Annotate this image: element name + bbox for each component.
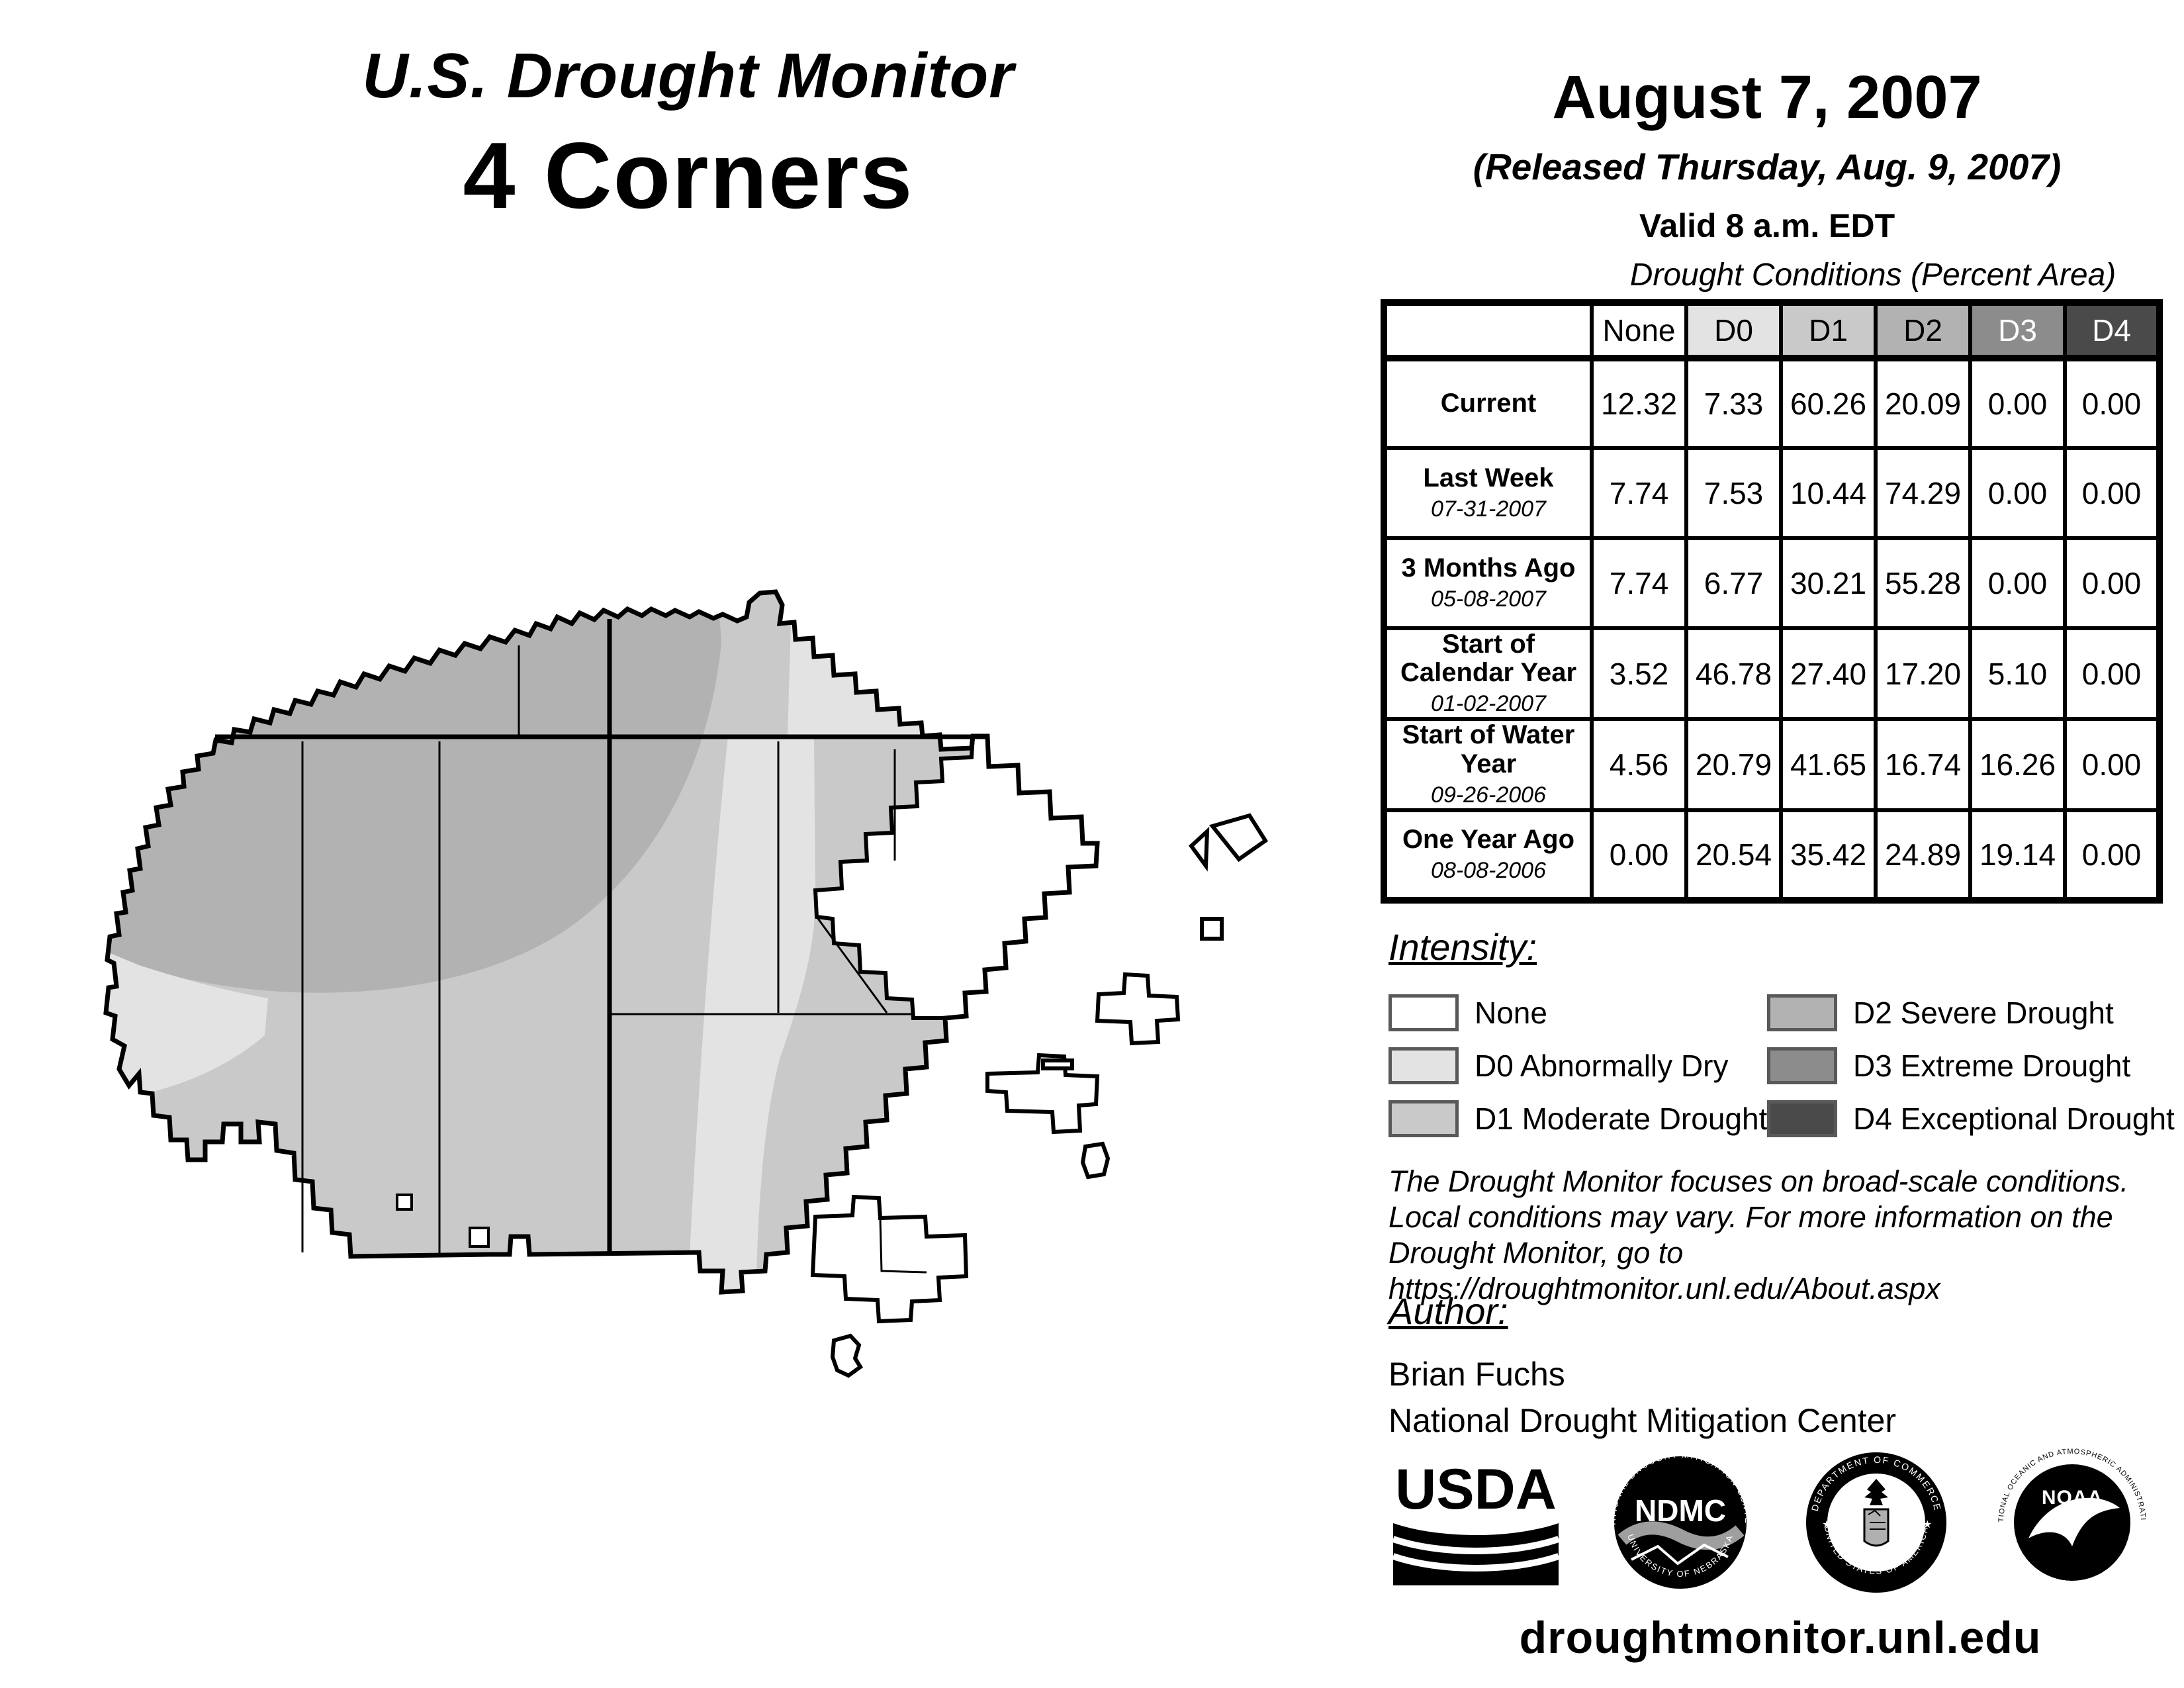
commerce-shield	[1864, 1509, 1888, 1546]
logos-row: USDA NATIONAL DROUGHT MITIGATION CENTER …	[1393, 1443, 2148, 1602]
island-shape	[833, 1336, 860, 1376]
legend-item-d4: D4 Exceptional Drought	[1767, 1100, 2164, 1138]
legend-heading: Intensity:	[1388, 925, 2169, 968]
value-cell: 35.42	[1781, 810, 1876, 900]
row-label-cell: Start of Water Year 09-26-2006	[1384, 719, 1592, 810]
value-cell: 0.00	[2065, 810, 2160, 900]
usda-logo: USDA	[1393, 1460, 1559, 1585]
value-cell: 60.26	[1781, 358, 1876, 448]
legend-swatch-d4	[1767, 1100, 1837, 1137]
ndmc-logo-text: NDMC	[1635, 1493, 1726, 1528]
row-date: 07-31-2007	[1387, 496, 1590, 522]
table-row: Current 12.32 7.33 60.26 20.09 0.00 0.00	[1384, 358, 2160, 448]
legend-label: D3 Extreme Drought	[1853, 1048, 2130, 1084]
table-header-row: None D0 D1 D2 D3 D4	[1384, 303, 2160, 358]
island-shape	[1202, 919, 1222, 939]
row-label-cell: Start of Calendar Year 01-02-2007	[1384, 628, 1592, 719]
legend-label: D4 Exceptional Drought	[1853, 1101, 2175, 1137]
disclaimer-line: The Drought Monitor focuses on broad-sca…	[1388, 1164, 2176, 1199]
row-label: Last Week	[1387, 464, 1590, 492]
value-cell: 7.53	[1686, 448, 1781, 538]
page-title: U.S. Drought Monitor	[199, 40, 1178, 113]
value-cell: 0.00	[1970, 538, 2065, 628]
noaa-logo-text: NOAA	[2042, 1487, 2103, 1509]
legend-item-d3: D3 Extreme Drought	[1767, 1047, 2164, 1085]
legend-swatch-d3	[1767, 1047, 1837, 1084]
value-cell: 16.74	[1876, 719, 1970, 810]
legend-column-left: None D0 Abnormally Dry D1 Moderate Droug…	[1388, 994, 1767, 1152]
legend-item-d0: D0 Abnormally Dry	[1388, 1047, 1767, 1085]
value-cell: 74.29	[1876, 448, 1970, 538]
legend-swatch-d0	[1388, 1047, 1459, 1084]
title-block: U.S. Drought Monitor 4 Corners	[199, 40, 1178, 230]
value-cell: 19.14	[1970, 810, 2065, 900]
value-cell: 0.00	[2065, 628, 2160, 719]
value-cell: 4.56	[1592, 719, 1686, 810]
island-shape	[813, 1197, 966, 1321]
row-label-cell: One Year Ago 08-08-2006	[1384, 810, 1592, 900]
value-cell: 30.21	[1781, 538, 1876, 628]
disclaimer: The Drought Monitor focuses on broad-sca…	[1388, 1164, 2176, 1307]
legend-label: D2 Severe Drought	[1853, 995, 2114, 1031]
drought-monitor-report: U.S. Drought Monitor 4 Corners August 7,…	[0, 0, 2184, 1688]
island-shape	[1083, 1144, 1108, 1177]
ndmc-logo: NATIONAL DROUGHT MITIGATION CENTER UNIVE…	[1605, 1447, 1756, 1598]
author-name: Brian Fuchs	[1388, 1351, 1896, 1397]
row-label: Start of Calendar Year	[1387, 630, 1590, 687]
table-row: One Year Ago 08-08-2006 0.00 20.54 35.42…	[1384, 810, 2160, 900]
col-header-d2: D2	[1876, 303, 1970, 358]
legend-column-right: D2 Severe Drought D3 Extreme Drought D4 …	[1767, 994, 2164, 1152]
island-shape	[1043, 1060, 1072, 1068]
row-label: 3 Months Ago	[1387, 554, 1590, 583]
value-cell: 20.54	[1686, 810, 1781, 900]
value-cell: 0.00	[2065, 538, 2160, 628]
drought-conditions-table: None D0 D1 D2 D3 D4 Current 12.32 7.33 6…	[1381, 299, 2163, 904]
value-cell: 20.09	[1876, 358, 1970, 448]
map-container	[66, 583, 1324, 1410]
row-label: Current	[1387, 389, 1590, 418]
legend-swatch-none	[1388, 994, 1459, 1031]
island-shape	[1212, 816, 1265, 859]
table-row: Last Week 07-31-2007 7.74 7.53 10.44 74.…	[1384, 448, 2160, 538]
inholding-shape	[470, 1228, 488, 1246]
legend-swatch-d2	[1767, 994, 1837, 1031]
legend-item-d1: D1 Moderate Drought	[1388, 1100, 1767, 1138]
legend-item-none: None	[1388, 994, 1767, 1032]
row-date: 09-26-2006	[1387, 782, 1590, 808]
value-cell: 5.10	[1970, 628, 2065, 719]
value-cell: 6.77	[1686, 538, 1781, 628]
row-label: Start of Water Year	[1387, 721, 1590, 778]
noaa-logo: NOAA NATIONAL OCEANIC AND ATMOSPHERIC AD…	[1997, 1447, 2148, 1598]
author-block: Author: Brian Fuchs National Drought Mit…	[1388, 1289, 1896, 1444]
legend-grid: None D0 Abnormally Dry D1 Moderate Droug…	[1388, 994, 2169, 1152]
legend-item-d2: D2 Severe Drought	[1767, 994, 2164, 1032]
author-heading: Author:	[1388, 1289, 1896, 1333]
author-organization: National Drought Mitigation Center	[1388, 1397, 1896, 1444]
report-date: August 7, 2007	[1416, 63, 2118, 132]
value-cell: 7.74	[1592, 538, 1686, 628]
value-cell: 0.00	[2065, 358, 2160, 448]
commerce-seal: ★ ★ DEPARTMENT OF COMMERCE UNITED STATES…	[1802, 1448, 1950, 1597]
valid-time: Valid 8 a.m. EDT	[1416, 207, 2118, 245]
legend-label: None	[1475, 995, 1547, 1031]
value-cell: 20.79	[1686, 719, 1781, 810]
value-cell: 0.00	[2065, 719, 2160, 810]
usda-logo-text: USDA	[1395, 1460, 1557, 1521]
website-url: droughtmonitor.unl.edu	[1416, 1612, 2144, 1664]
table-row: 3 Months Ago 05-08-2007 7.74 6.77 30.21 …	[1384, 538, 2160, 628]
col-header-none: None	[1592, 303, 1686, 358]
legend-label: D1 Moderate Drought	[1475, 1101, 1767, 1137]
value-cell: 3.52	[1592, 628, 1686, 719]
inholding-shape	[397, 1195, 412, 1209]
row-label-cell: Current	[1384, 358, 1592, 448]
value-cell: 24.89	[1876, 810, 1970, 900]
table-corner-cell	[1384, 303, 1592, 358]
value-cell: 0.00	[1970, 448, 2065, 538]
drought-map	[66, 583, 1324, 1410]
value-cell: 27.40	[1781, 628, 1876, 719]
released-date: (Released Thursday, Aug. 9, 2007)	[1416, 146, 2118, 188]
table-row: Start of Water Year 09-26-2006 4.56 20.7…	[1384, 719, 2160, 810]
col-header-d0: D0	[1686, 303, 1781, 358]
table-row: Start of Calendar Year 01-02-2007 3.52 4…	[1384, 628, 2160, 719]
island-shape	[1191, 831, 1207, 866]
legend-label: D0 Abnormally Dry	[1475, 1048, 1728, 1084]
col-header-d4: D4	[2065, 303, 2160, 358]
table-title: Drought Conditions (Percent Area)	[1588, 257, 2158, 293]
row-date: 08-08-2006	[1387, 858, 1590, 884]
value-cell: 7.33	[1686, 358, 1781, 448]
intensity-legend: Intensity: None D0 Abnormally Dry D1 Mod…	[1388, 925, 2169, 1152]
legend-swatch-d1	[1388, 1100, 1459, 1137]
row-label: One Year Ago	[1387, 825, 1590, 854]
date-block: August 7, 2007 (Released Thursday, Aug. …	[1416, 63, 2118, 245]
value-cell: 7.74	[1592, 448, 1686, 538]
row-label-cell: Last Week 07-31-2007	[1384, 448, 1592, 538]
value-cell: 55.28	[1876, 538, 1970, 628]
value-cell: 0.00	[1970, 358, 2065, 448]
col-header-d3: D3	[1970, 303, 2065, 358]
value-cell: 16.26	[1970, 719, 2065, 810]
row-date: 05-08-2007	[1387, 586, 1590, 612]
disclaimer-line: Local conditions may vary. For more info…	[1388, 1199, 2176, 1235]
value-cell: 0.00	[1592, 810, 1686, 900]
value-cell: 0.00	[2065, 448, 2160, 538]
row-label-cell: 3 Months Ago 05-08-2007	[1384, 538, 1592, 628]
row-date: 01-02-2007	[1387, 691, 1590, 717]
value-cell: 17.20	[1876, 628, 1970, 719]
value-cell: 10.44	[1781, 448, 1876, 538]
value-cell: 41.65	[1781, 719, 1876, 810]
value-cell: 46.78	[1686, 628, 1781, 719]
region-title: 4 Corners	[199, 122, 1178, 230]
col-header-d1: D1	[1781, 303, 1876, 358]
value-cell: 12.32	[1592, 358, 1686, 448]
island-shape	[1097, 974, 1178, 1043]
